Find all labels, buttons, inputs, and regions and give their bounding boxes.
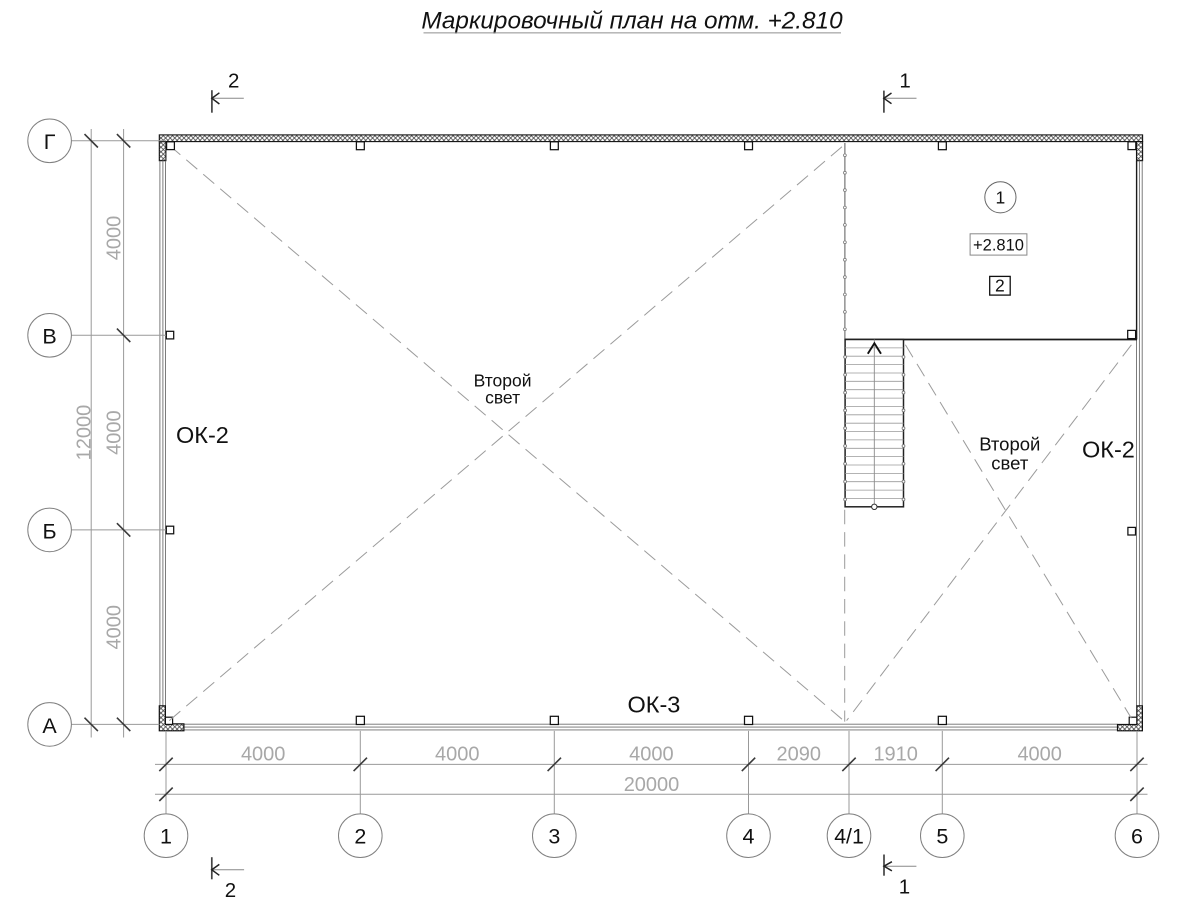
svg-text:3: 3 [548,824,560,848]
svg-text:4000: 4000 [103,410,125,455]
svg-text:4000: 4000 [103,216,125,261]
svg-text:ОК-3: ОК-3 [628,691,681,717]
svg-text:2: 2 [225,879,236,900]
svg-text:4: 4 [743,824,755,848]
svg-text:4000: 4000 [103,605,125,650]
svg-text:4000: 4000 [1017,743,1062,765]
svg-text:ОК-2: ОК-2 [1082,436,1135,462]
svg-text:Г: Г [44,130,56,154]
svg-text:2: 2 [354,824,366,848]
svg-text:свет: свет [485,388,520,408]
svg-text:2: 2 [995,276,1005,296]
svg-text:1: 1 [160,824,172,848]
svg-text:4000: 4000 [241,743,286,765]
svg-text:А: А [42,714,57,738]
svg-text:ОК-2: ОК-2 [176,422,229,448]
svg-text:свет: свет [991,452,1029,473]
svg-text:6: 6 [1131,824,1143,848]
svg-text:4/1: 4/1 [834,824,864,848]
svg-text:+2.810: +2.810 [973,236,1024,254]
svg-text:1: 1 [899,875,910,898]
svg-text:Маркировочный план на отм. +2.: Маркировочный план на отм. +2.810 [421,7,843,34]
svg-text:4000: 4000 [629,743,674,765]
svg-text:12000: 12000 [73,405,95,461]
svg-text:Б: Б [43,519,57,543]
svg-text:В: В [42,325,56,349]
svg-text:1: 1 [996,188,1006,208]
svg-text:2: 2 [228,69,239,92]
svg-text:4000: 4000 [435,743,480,765]
svg-text:20000: 20000 [624,774,680,796]
svg-text:5: 5 [936,824,948,848]
svg-text:1: 1 [899,69,910,92]
svg-text:1910: 1910 [873,743,918,765]
svg-text:2090: 2090 [777,743,822,765]
